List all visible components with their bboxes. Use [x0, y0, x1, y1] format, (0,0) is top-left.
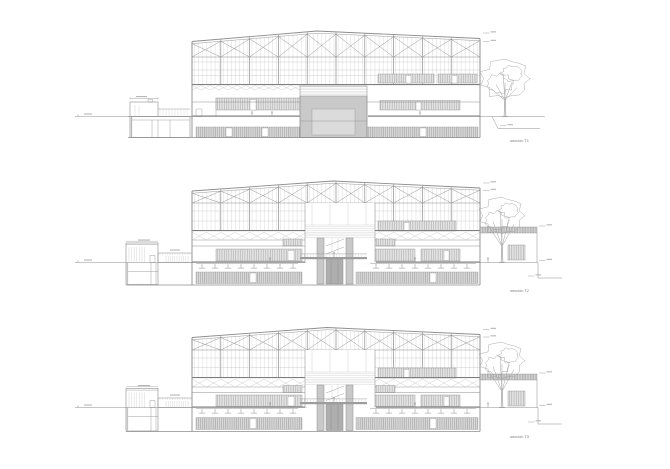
drawing-sheet: sección T1 sección T2 sección T3 — [0, 0, 670, 469]
section-root — [75, 181, 562, 285]
section-root — [75, 31, 545, 138]
section-label-T2: sección T2 — [498, 289, 530, 293]
tree — [480, 59, 531, 116]
section-label-T3: sección T3 — [498, 435, 530, 439]
right-site — [480, 374, 537, 408]
central-core — [300, 86, 367, 138]
annex — [126, 385, 192, 431]
section-drawing-T1 — [0, 25, 670, 175]
annex — [126, 240, 192, 285]
section-drawing-T3 — [0, 320, 670, 469]
section-root — [75, 328, 562, 432]
section-label-T1: sección T1 — [498, 139, 530, 143]
section-drawing-T2 — [0, 175, 670, 325]
